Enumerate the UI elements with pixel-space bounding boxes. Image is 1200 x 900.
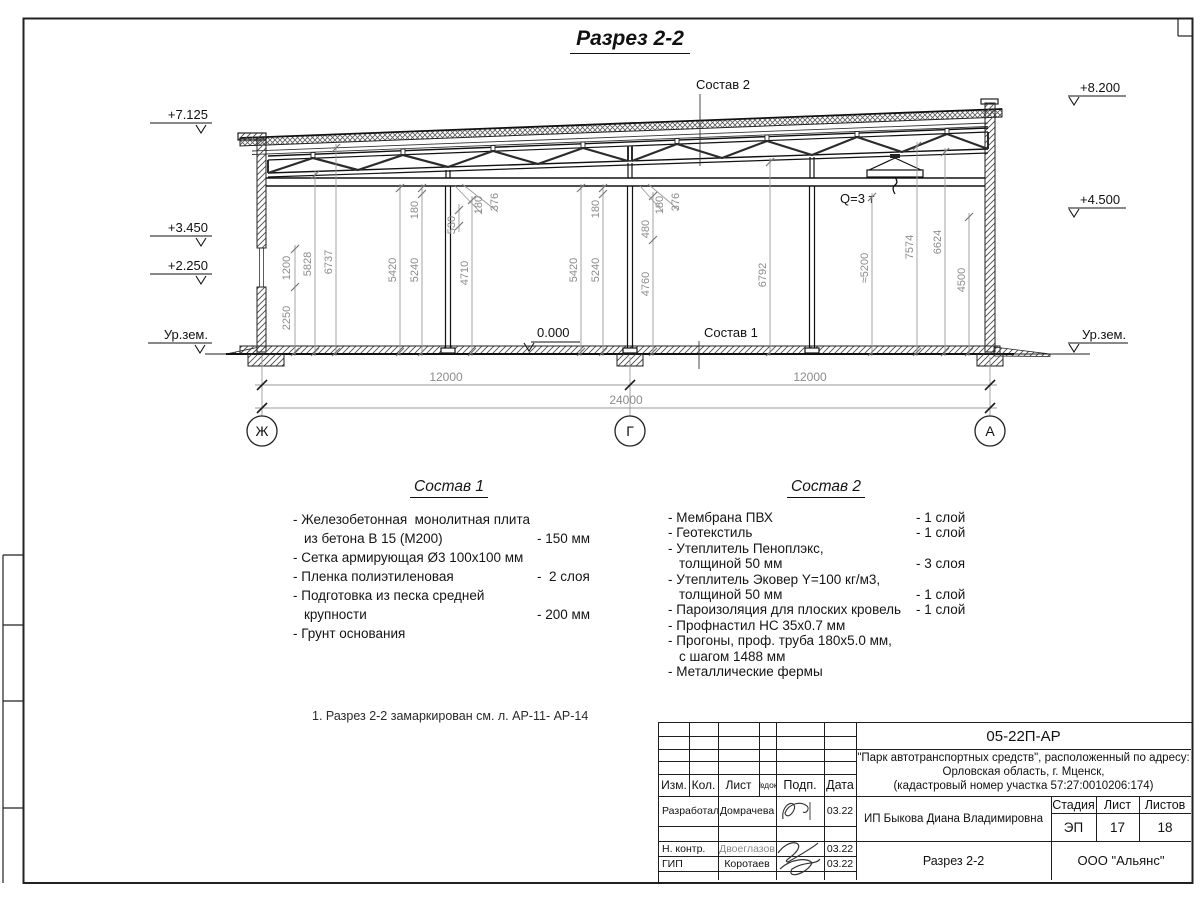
list-item: - Утеплитель Пеноплэкс, [668,541,984,556]
elevation-marks-right: +8.200 +4.500 Ур.зем. [1068,80,1128,352]
drawing-name: Разрез 2-2 [856,841,1051,880]
dim-label: 5828 [302,252,314,276]
axis-label: А [985,423,995,439]
leader-sostav2-label: Состав 2 [696,77,750,92]
list-item: - Железобетонная монолитная плита [293,510,605,529]
dim-label: 530 [446,216,458,234]
item-value: - 1 слой [916,602,984,617]
dim-label: 6737 [323,250,335,274]
drawing-sheet: Q=3 т Состав 2 Состав 1 0.000 +7.125 +3.… [0,0,1200,900]
elevation-label: +7.125 [168,107,208,122]
page-title: Разрез 2-2 [500,27,760,51]
dim-label: 4500 [956,268,968,292]
composition-1-title: Состав 1 [293,478,605,496]
footing [248,354,284,366]
list-item: - Подготовка из песка средней [293,586,605,605]
zero-level-label: 0.000 [537,325,570,340]
beam-and-columns [266,157,985,353]
sheets-total: 18 [1139,813,1191,841]
item-text: - Мембрана ПВХ [668,510,773,525]
item-text: из бетона В 15 (М200) [293,529,443,548]
bottom-dimensions: 12000 12000 24000 Ж Г А [247,357,1005,446]
elevation-label: +2.250 [168,258,208,273]
elevation-marks-left: +7.125 +3.450 +2.250 Ур.зем. [148,107,212,353]
item-text: крупности [293,605,367,624]
list-item: - Пленка полиэтиленовая- 2 слоя [293,567,605,586]
dim-label: 12000 [793,370,827,384]
item-value: - 3 слоя [916,556,984,571]
dim-label: 180 [473,196,485,214]
list-item: - Сетка армирующая Ø3 100х100 мм [293,548,605,567]
dim-label: 4760 [640,272,652,296]
dim-label: 5420 [568,258,580,282]
signature-icon [774,835,824,881]
item-text: - Профнастил НС 35х0.7 мм [668,618,845,633]
elevation-label: +3.450 [168,220,208,235]
item-text: - Подготовка из песка средней [293,586,484,605]
dim-label: ≈5200 [859,253,871,284]
elevation-label: +4.500 [1080,192,1120,207]
sign-date: 03.22 [824,856,856,871]
signer-role: Н. контр. [662,841,718,856]
signer-role: ГИП [662,856,718,871]
item-text: - Пленка полиэтиленовая [293,567,454,586]
item-value: - 1 слой [916,525,984,540]
floor-slab [240,346,1000,354]
item-value [916,618,984,633]
signer-role: Разработал [662,796,718,826]
item-value: - 150 мм [537,529,605,548]
item-text: - Сетка армирующая Ø3 100х100 мм [293,548,523,567]
ground-level-label: Ур.зем. [1082,327,1126,342]
page-title-text: Разрез 2-2 [570,27,690,54]
composition-2-block: Состав 2 - Мембрана ПВХ- 1 слой - Геотек… [668,478,984,679]
dim-label: 12000 [429,370,463,384]
dim-label: 480 [640,220,652,238]
item-text: с шагом 1488 мм [668,649,785,664]
dim-label: 180 [654,196,666,214]
dim-label: 24000 [609,393,643,407]
list-item: толщиной 50 мм- 1 слой [668,587,984,602]
sheet-number: 17 [1096,813,1139,841]
floor-ground [205,346,1090,366]
item-text: - Геотекстиль [668,525,752,540]
sheet-label: Лист [1096,796,1139,813]
list-item: - Геотекстиль- 1 слой [668,525,984,540]
item-text: - Прогоны, проф. труба 180х5.0 мм, [668,633,892,648]
item-value [537,586,605,605]
dim-label: 6792 [757,263,769,287]
dim-label: 376 [489,193,501,211]
item-value [916,664,984,679]
item-value: - 200 мм [537,605,605,624]
item-text: - Металлические фермы [668,664,823,679]
composition-2-title-text: Состав 2 [787,478,865,498]
list-item: из бетона В 15 (М200)- 150 мм [293,529,605,548]
item-value [537,548,605,567]
project-line: "Парк автотранспортных средств", располо… [856,751,1191,765]
col-header-podp: Подп. [776,774,824,796]
dim-label: 4710 [459,261,471,285]
item-value [537,624,605,643]
title-block: 05-22П-АР "Парк автотранспортных средств… [658,722,1193,883]
item-value [537,510,605,529]
col-header-izm: Изм. [659,774,689,796]
project-line: Орловская область, г. Мценск, [856,765,1191,779]
item-value: - 2 слоя [537,567,605,586]
list-item: - Пароизоляция для плоских кровель- 1 сл… [668,602,984,617]
signer-name: Двоеглазов [718,841,776,856]
wall-axis-zh-upper [257,138,266,248]
item-value: - 1 слой [916,587,984,602]
item-text: - Железобетонная монолитная плита [293,510,530,529]
sign-date: 03.22 [824,796,856,826]
col-header-list: Лист [718,774,759,796]
project-line: (кадастровый номер участка 57:27:0010206… [856,779,1191,793]
leader-sostav1-label: Состав 1 [704,325,758,340]
item-text: - Пароизоляция для плоских кровель [668,602,901,617]
item-text: толщиной 50 мм [668,556,782,571]
composition-1-block: Состав 1 - Железобетонная монолитная пли… [293,478,605,643]
list-item: - Металлические фермы [668,664,984,679]
list-item: толщиной 50 мм- 3 слоя [668,556,984,571]
signer-name: Домрачева [718,796,776,826]
col-header-ndok: №док. [759,774,776,796]
wall-axis-a [985,103,995,352]
dim-label: 180 [409,201,421,219]
list-item: с шагом 1488 мм [668,649,984,664]
dim-label: 5420 [387,258,399,282]
dim-label: 6624 [932,230,944,254]
list-item: - Прогоны, проф. труба 180х5.0 мм, [668,633,984,648]
vertical-dimension-labels: 1200 2250 5828 6737 5420 180 5240 530 18… [281,193,968,330]
sheet-note: 1. Разрез 2-2 замаркирован см. л. АР-11-… [312,709,588,723]
item-value [916,633,984,648]
list-item: - Утеплитель Эковер Y=100 кг/м3, [668,572,984,587]
doc-code: 05-22П-АР [856,723,1191,749]
stage-value: ЭП [1051,813,1096,841]
dim-label: 2250 [281,306,293,330]
item-value: - 1 слой [916,510,984,525]
sign-date: 03.22 [824,841,856,856]
column-axis-g [623,163,637,353]
signature-icon [777,797,823,825]
dim-label: 1200 [281,256,293,280]
wall-axis-zh-lower [257,287,266,352]
crane-hoist: Q=3 т [840,154,923,206]
crane-capacity-label: Q=3 т [840,191,875,206]
dim-label: 376 [670,193,682,211]
item-value [916,572,984,587]
company-name: ООО "Альянс" [1051,841,1191,880]
dim-label: 7574 [904,235,916,259]
col-header-kol: Кол. [689,774,718,796]
list-item: - Грунт основания [293,624,605,643]
stage-label: Стадия [1051,796,1096,813]
column-mid-1 [441,170,455,353]
signer-name: Коротаев [718,856,776,871]
elevation-label: +8.200 [1080,80,1120,95]
sheets-label: Листов [1139,796,1191,813]
list-item: крупности- 200 мм [293,605,605,624]
list-item: - Профнастил НС 35х0.7 мм [668,618,984,633]
ground-level-label: Ур.зем. [164,327,208,342]
client-name: ИП Быкова Диана Владимировна [856,796,1051,841]
item-text: - Утеплитель Пеноплэкс, [668,541,824,556]
axis-label: Г [626,423,634,439]
dim-label: 5240 [590,258,602,282]
dim-label: 180 [590,200,602,218]
composition-2-title: Состав 2 [668,478,984,496]
dim-label: 5240 [409,258,421,282]
item-value [916,541,984,556]
col-header-data: Дата [824,774,856,796]
item-text: - Утеплитель Эковер Y=100 кг/м3, [668,572,880,587]
item-text: - Грунт основания [293,624,405,643]
composition-1-title-text: Состав 1 [410,478,488,498]
list-item: - Мембрана ПВХ- 1 слой [668,510,984,525]
axis-label: Ж [256,423,269,439]
item-text: толщиной 50 мм [668,587,782,602]
item-value [916,649,984,664]
